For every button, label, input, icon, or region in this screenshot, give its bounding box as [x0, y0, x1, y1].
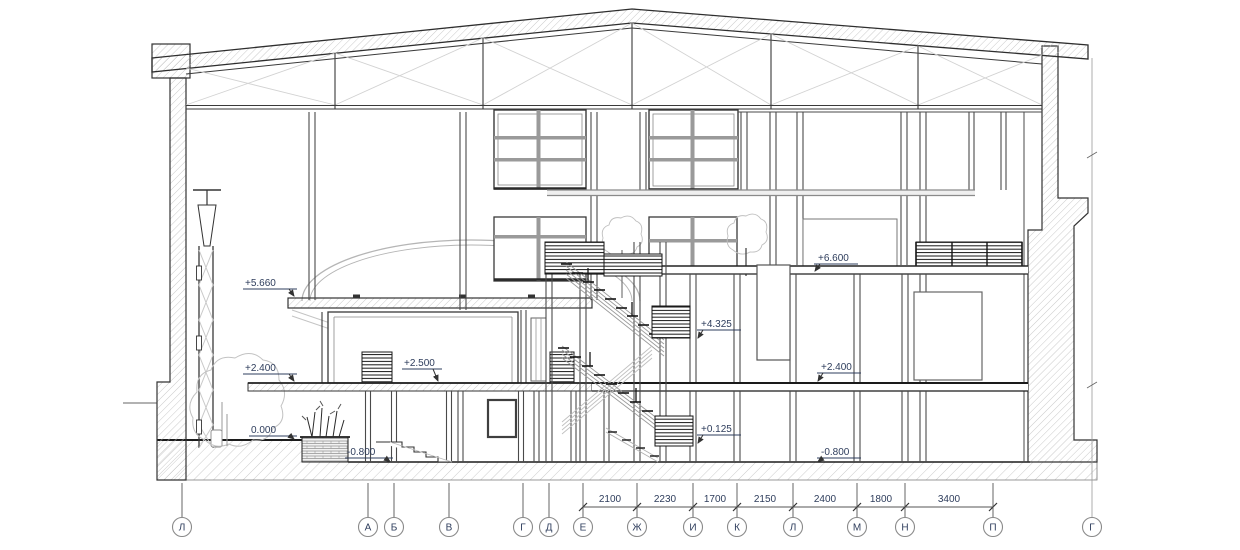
elevation-label: +5.660	[245, 278, 276, 289]
elevation-label: +2.500	[404, 358, 435, 369]
elevation-label: +2.400	[821, 362, 852, 373]
grid-letter: Б	[391, 523, 398, 534]
grid-marker-B: Б	[385, 518, 404, 537]
stair-landing-railing-4325	[652, 306, 690, 338]
grid-marker-V: В	[440, 518, 459, 537]
grid-letter: Е	[580, 523, 587, 534]
elevation-mark-5660: +5.660	[243, 278, 297, 296]
elevation-label: +4.325	[701, 319, 732, 330]
small-staircase	[376, 442, 452, 462]
grid-letter: А	[365, 523, 372, 534]
mezzanine-room	[322, 310, 574, 383]
elevation-label: +6.600	[818, 253, 849, 264]
mezzanine-stair-railing-left	[362, 352, 392, 383]
lattice-column	[193, 190, 222, 448]
dimension-value: 2230	[654, 494, 677, 505]
elevation-mark-m0800-left: -0.800	[345, 447, 393, 462]
duct-pylon	[757, 265, 790, 360]
grid-letter: П	[989, 523, 996, 534]
right-exterior-wall	[1024, 46, 1097, 462]
dimension-string: 2100 2230 1700 2150 2400 1800 3400	[579, 494, 997, 511]
grid-marker-D: Д	[540, 518, 559, 537]
door-opening	[488, 400, 516, 437]
elevation-mark-2400-left: +2.400	[243, 363, 297, 381]
grid-marker-K: К	[728, 518, 747, 537]
elevation-label: -0.800	[821, 447, 850, 458]
section-drawing-page: +5.660 +2.400 0.000 -0.800 +2.500 +4.325…	[0, 0, 1240, 550]
grid-letter: В	[446, 523, 453, 534]
grid-letter: Г	[1089, 523, 1095, 534]
grid-marker-A: А	[359, 518, 378, 537]
window-upper-right	[649, 110, 738, 190]
floor-slab-2500	[248, 383, 592, 391]
grid-marker-P: П	[984, 518, 1003, 537]
elevation-label: -0.800	[347, 447, 376, 458]
elevation-label: +2.400	[245, 363, 276, 374]
grid-marker-E: Е	[574, 518, 593, 537]
stair-landing-railing-0125	[655, 416, 693, 446]
ground-hatch	[123, 403, 1097, 480]
grid-letter: Л	[179, 523, 186, 534]
roof-slab	[152, 9, 1088, 74]
building-section-drawing: +5.660 +2.400 0.000 -0.800 +2.500 +4.325…	[0, 0, 1240, 550]
grid-letter: Д	[546, 523, 553, 534]
grid-letter: Л	[790, 523, 797, 534]
grid-marker-I: И	[684, 518, 703, 537]
grid-letter: М	[853, 523, 861, 534]
elevation-mark-0000: 0.000	[249, 425, 297, 439]
grid-letter: И	[689, 523, 696, 534]
grid-marker-N: Н	[896, 518, 915, 537]
grid-letter: Г	[520, 523, 526, 534]
dimension-value: 2150	[754, 494, 777, 505]
planter	[300, 401, 350, 462]
grid-letter: Ж	[632, 523, 642, 534]
grid-marker-G2: Г	[1083, 518, 1102, 537]
grid-marker-G1: Г	[514, 518, 533, 537]
dimension-value: 1800	[870, 494, 893, 505]
planter-plants	[302, 401, 344, 437]
left-exterior-wall	[152, 44, 190, 480]
stair-flight-bottom	[606, 428, 659, 462]
dimension-value: 1700	[704, 494, 727, 505]
window-upper-left	[494, 110, 586, 189]
floor-slab-2400	[592, 383, 1028, 391]
mid-floor-band	[547, 190, 975, 196]
truss-bottom-chord	[186, 106, 1042, 110]
grid-letter: К	[734, 523, 740, 534]
elevation-label: +0.125	[701, 424, 732, 435]
grid-marker-L2: Л	[784, 518, 803, 537]
dimension-value: 3400	[938, 494, 961, 505]
dimension-value: 2400	[814, 494, 837, 505]
grid-letter: Н	[901, 523, 908, 534]
grid-marker-M: М	[848, 518, 867, 537]
interior-window-box	[914, 292, 982, 380]
elevation-label: 0.000	[251, 425, 276, 436]
stair-top-railing-2	[604, 254, 662, 276]
grid-marker-L1: Л	[173, 518, 192, 537]
grid-marker-Zh: Ж	[628, 518, 647, 537]
dimension-value: 2100	[599, 494, 622, 505]
